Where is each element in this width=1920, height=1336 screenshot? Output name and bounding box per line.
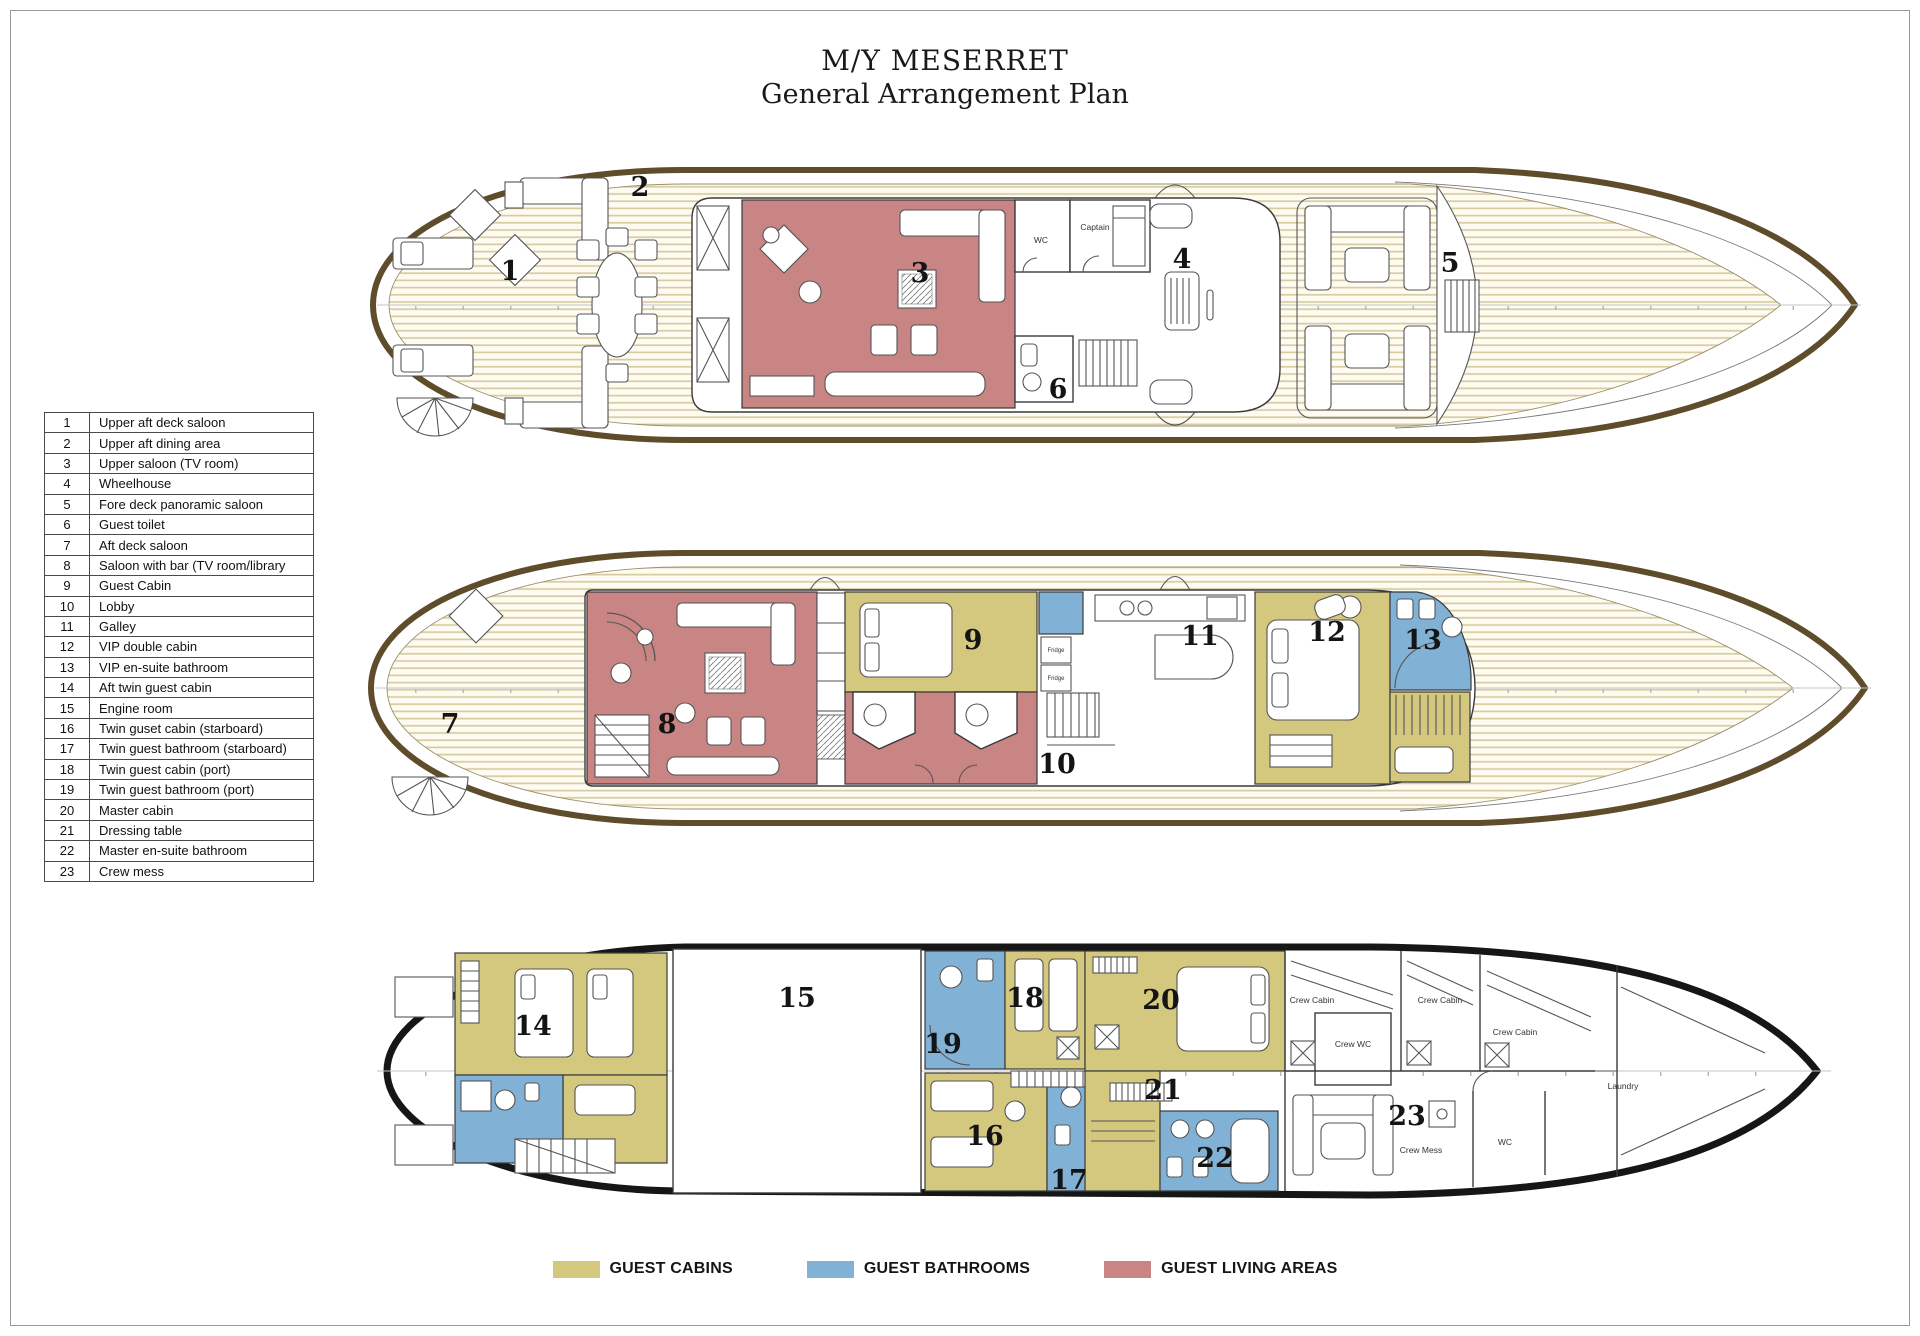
table-row: 15Engine room [45, 698, 314, 718]
deck-number-9: 9 [964, 625, 983, 656]
room-captain-cabin [1070, 200, 1150, 272]
main-deck-plan: 7 8 9 10 11 12 13 Fridge Fridge [355, 535, 1885, 885]
guest-living-label: GUEST LIVING AREAS [1161, 1260, 1337, 1278]
lower-mid-stairs [1011, 1071, 1091, 1087]
table-row: 1Upper aft deck saloon [45, 413, 314, 433]
table-row: 21Dressing table [45, 820, 314, 840]
deck-number-8: 8 [658, 709, 677, 740]
table-row: 6Guest toilet [45, 514, 314, 534]
deck-number-5: 5 [1441, 248, 1460, 279]
lower-deck-plan: 14 15 16 17 18 19 20 21 22 23 Crew Cabin… [365, 925, 1845, 1275]
table-row: 2Upper aft dining area [45, 433, 314, 453]
deck-number-6: 6 [1049, 374, 1068, 405]
table-row: 9Guest Cabin [45, 576, 314, 596]
deck-number-19: 19 [924, 1029, 962, 1060]
table-row: 20Master cabin [45, 800, 314, 820]
upper-stairs [1079, 340, 1137, 386]
deck-number-18: 18 [1006, 983, 1044, 1014]
deck-number-17: 17 [1050, 1165, 1088, 1196]
guest-bathrooms-label: GUEST BATHROOMS [864, 1260, 1030, 1278]
table-row: 22Master en-suite bathroom [45, 841, 314, 861]
label-captain: Captain [1080, 222, 1110, 232]
upper-deck-plan: 1 2 3 4 5 6 WC Captain [355, 140, 1885, 485]
table-row: 14Aft twin guest cabin [45, 678, 314, 698]
label-laundry: Laundry [1608, 1081, 1639, 1091]
guest-living-swatch [1104, 1261, 1151, 1278]
label-wc-lower: WC [1498, 1137, 1512, 1147]
table-row: 18Twin guest cabin (port) [45, 759, 314, 779]
main-cabinets [817, 593, 845, 759]
day-head-blue [1039, 592, 1083, 634]
deck-number-12: 12 [1308, 617, 1346, 648]
page-title: M/Y MESERRET General Arrangement Plan [0, 44, 1890, 111]
deck-number-20: 20 [1142, 985, 1180, 1016]
deck-number-14: 14 [514, 1011, 552, 1042]
table-row: 3Upper saloon (TV room) [45, 453, 314, 473]
guest-cabins-label: GUEST CABINS [610, 1260, 733, 1278]
lower-aft-stairs [515, 1139, 615, 1173]
deck-number-11: 11 [1181, 621, 1219, 652]
deck-number-3: 3 [911, 258, 930, 289]
deck-number-2: 2 [631, 172, 650, 203]
deck-number-7: 7 [441, 709, 460, 740]
table-row: 11Galley [45, 616, 314, 636]
color-legend: GUEST CABINS GUEST BATHROOMS GUEST LIVIN… [0, 1260, 1890, 1278]
table-row: 23Crew mess [45, 861, 314, 881]
deck-number-15: 15 [778, 983, 816, 1014]
legend-item-guest-cabins: GUEST CABINS [553, 1260, 733, 1278]
deck-number-4: 4 [1173, 244, 1192, 275]
legend-item-guest-bathrooms: GUEST BATHROOMS [807, 1260, 1030, 1278]
table-row: 13VIP en-suite bathroom [45, 657, 314, 677]
title-line1: M/Y MESERRET [0, 44, 1890, 78]
title-line2: General Arrangement Plan [0, 78, 1890, 111]
label-fridge-2: Fridge [1047, 676, 1065, 682]
label-crew-cabin-2: Crew Cabin [1418, 995, 1463, 1005]
deck-number-21: 21 [1144, 1075, 1182, 1106]
label-fridge-1: Fridge [1047, 648, 1065, 654]
label-crew-mess: Crew Mess [1400, 1145, 1443, 1155]
guest-cabins-swatch [553, 1261, 600, 1278]
deck-number-13: 13 [1404, 625, 1442, 656]
deck-number-10: 10 [1038, 749, 1076, 780]
table-row: 8Saloon with bar (TV room/library [45, 555, 314, 575]
table-row: 17Twin guest bathroom (starboard) [45, 739, 314, 759]
label-wc-upper: WC [1034, 235, 1048, 245]
deck-number-23: 23 [1388, 1101, 1426, 1132]
label-crew-cabin-1: Crew Cabin [1290, 995, 1335, 1005]
label-crew-cabin-3: Crew Cabin [1493, 1027, 1538, 1037]
table-row: 16Twin guset cabin (starboard) [45, 718, 314, 738]
table-row: 5Fore deck panoramic saloon [45, 494, 314, 514]
label-crew-wc: Crew WC [1335, 1039, 1371, 1049]
deck-number-16: 16 [966, 1121, 1004, 1152]
deck-number-22: 22 [1196, 1143, 1234, 1174]
guest-cabin-9-furniture [860, 603, 952, 677]
room-legend-table: 1Upper aft deck saloon 2Upper aft dining… [44, 412, 314, 882]
table-row: 12VIP double cabin [45, 637, 314, 657]
table-row: 19Twin guest bathroom (port) [45, 780, 314, 800]
table-row: 4Wheelhouse [45, 474, 314, 494]
table-row: 7Aft deck saloon [45, 535, 314, 555]
legend-item-guest-living: GUEST LIVING AREAS [1104, 1260, 1337, 1278]
deck-number-1: 1 [501, 256, 520, 287]
guest-bathrooms-swatch [807, 1261, 854, 1278]
table-row: 10Lobby [45, 596, 314, 616]
